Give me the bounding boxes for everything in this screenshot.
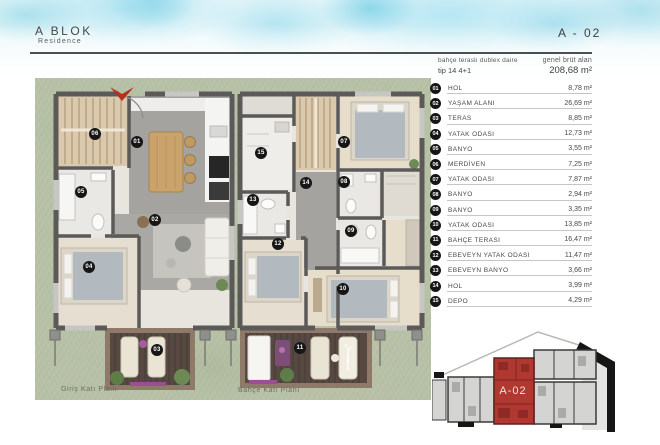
table-row: 02YAŞAM ALANI26,69 m² — [430, 96, 592, 111]
room-number-badge: 13 — [430, 265, 441, 276]
row-divider — [447, 200, 592, 201]
row-divider — [447, 230, 592, 231]
room-number-badge: 12 — [430, 250, 441, 261]
keyplan-highlight-label: A-02 — [490, 385, 536, 397]
room-area: 2,94 m² — [568, 191, 592, 199]
room-number-badge: 14 — [430, 281, 441, 292]
room-name: BAHÇE TERASI — [448, 237, 500, 244]
room-marker-14: 14 — [300, 177, 312, 189]
ground-floor-label: Giriş Katı Planı — [61, 386, 117, 393]
row-divider — [447, 275, 592, 276]
room-area: 16,47 m² — [564, 236, 592, 244]
room-number-badge: 09 — [430, 205, 441, 216]
room-area: 4,29 m² — [568, 297, 592, 305]
header-divider — [30, 52, 592, 54]
room-name: HOL — [448, 283, 463, 290]
room-number-badge: 05 — [430, 144, 441, 155]
table-header: bahçe teraslı dublex daire tip 14 4+1 ge… — [430, 57, 592, 76]
room-marker-15: 15 — [255, 147, 267, 159]
unit-type-code: tip 14 4+1 — [438, 66, 518, 75]
block-title: A BLOK — [35, 24, 93, 38]
room-name: YATAK ODASI — [448, 176, 494, 183]
room-number-badge: 06 — [430, 159, 441, 170]
room-marker-11: 11 — [294, 342, 306, 354]
row-divider — [447, 260, 592, 261]
room-number-badge: 02 — [430, 98, 441, 109]
room-marker-09: 09 — [345, 225, 357, 237]
room-area: 8,85 m² — [568, 115, 592, 123]
table-row: 10YATAK ODASI13,85 m² — [430, 218, 592, 233]
row-divider — [447, 184, 592, 185]
floor-plans-drawing — [35, 78, 431, 400]
row-divider — [447, 169, 592, 170]
room-name: EBEVEYN BANYO — [448, 267, 508, 274]
table-row: 11BAHÇE TERASI16,47 m² — [430, 233, 592, 248]
room-area: 13,85 m² — [564, 221, 592, 229]
floor-plans-area: 01 02 03 04 05 06 07 08 09 10 11 12 13 1… — [35, 78, 431, 400]
garden-floor-plan — [240, 94, 422, 388]
room-marker-01: 01 — [131, 136, 143, 148]
room-number-badge: 01 — [430, 83, 441, 94]
room-number-badge: 03 — [430, 113, 441, 124]
block-subtitle: Residence — [38, 38, 82, 45]
room-name: YATAK ODASI — [448, 222, 494, 229]
table-row: 15DEPO4,29 m² — [430, 294, 592, 309]
room-number-badge: 11 — [430, 235, 441, 246]
room-number-badge: 04 — [430, 129, 441, 140]
row-divider — [447, 291, 592, 292]
room-marker-07: 07 — [338, 136, 350, 148]
brochure-page: A BLOK Residence A - 02 — [0, 0, 660, 445]
room-number-badge: 10 — [430, 220, 441, 231]
garden-floor-label: Bahçe Katı Planı — [238, 387, 300, 394]
room-number-badge: 07 — [430, 174, 441, 185]
room-name: BANYO — [448, 191, 473, 198]
table-row: 12EBEVEYN YATAK ODASI11,47 m² — [430, 248, 592, 263]
gross-area-label: genel brüt alan — [543, 57, 592, 64]
row-divider — [447, 108, 592, 109]
room-marker-02: 02 — [149, 214, 161, 226]
room-number-badge: 08 — [430, 189, 441, 200]
table-row: 04YATAK ODASI12,73 m² — [430, 127, 592, 142]
room-marker-04: 04 — [83, 261, 95, 273]
table-row: 13EBEVEYN BANYO3,66 m² — [430, 263, 592, 278]
row-divider — [447, 139, 592, 140]
row-divider — [447, 215, 592, 216]
room-name: DEPO — [448, 298, 468, 305]
room-marker-08: 08 — [338, 176, 350, 188]
room-area: 12,73 m² — [564, 130, 592, 138]
room-marker-03: 03 — [151, 344, 163, 356]
table-row: 14HOL3,99 m² — [430, 278, 592, 293]
unit-code: A - 02 — [558, 26, 601, 40]
room-name: MERDİVEN — [448, 161, 486, 168]
room-name: TERAS — [448, 115, 472, 122]
row-divider — [447, 154, 592, 155]
room-marker-12: 12 — [272, 238, 284, 250]
room-area: 7,87 m² — [568, 176, 592, 184]
room-area: 3,55 m² — [568, 145, 592, 153]
table-row: 09BANYO3,35 m² — [430, 203, 592, 218]
row-divider — [447, 93, 592, 94]
room-marker-05: 05 — [75, 186, 87, 198]
site-key-plan: A-02 — [432, 322, 658, 440]
room-area: 8,78 m² — [568, 85, 592, 93]
room-name: BANYO — [448, 146, 473, 153]
room-area-table: bahçe teraslı dublex daire tip 14 4+1 ge… — [430, 57, 592, 309]
room-name: HOL — [448, 85, 463, 92]
room-area: 3,66 m² — [568, 267, 592, 275]
room-area: 7,25 m² — [568, 161, 592, 169]
table-row: 07YATAK ODASI7,87 m² — [430, 172, 592, 187]
room-marker-06: 06 — [89, 128, 101, 140]
room-area: 11,47 m² — [565, 252, 592, 260]
table-row: 05BANYO3,55 m² — [430, 142, 592, 157]
room-name: YATAK ODASI — [448, 131, 494, 138]
table-row: 06MERDİVEN7,25 m² — [430, 157, 592, 172]
room-marker-13: 13 — [247, 194, 259, 206]
room-area: 26,69 m² — [564, 100, 592, 108]
table-row: 03TERAS8,85 m² — [430, 111, 592, 126]
key-plan-drawing — [432, 322, 658, 440]
room-name: YAŞAM ALANI — [448, 100, 495, 107]
table-row: 01HOL8,78 m² — [430, 81, 592, 96]
row-divider — [447, 124, 592, 125]
row-divider — [447, 245, 592, 246]
room-name: EBEVEYN YATAK ODASI — [448, 252, 530, 259]
room-number-badge: 15 — [430, 296, 441, 307]
unit-type-desc: bahçe teraslı dublex daire — [438, 57, 518, 64]
room-marker-10: 10 — [337, 283, 349, 295]
gross-area-value: 208,68 m² — [543, 65, 592, 76]
table-row: 08BANYO2,94 m² — [430, 187, 592, 202]
room-area: 3,99 m² — [568, 282, 592, 290]
room-name: BANYO — [448, 207, 473, 214]
room-area: 3,35 m² — [568, 206, 592, 214]
row-divider — [447, 306, 592, 307]
